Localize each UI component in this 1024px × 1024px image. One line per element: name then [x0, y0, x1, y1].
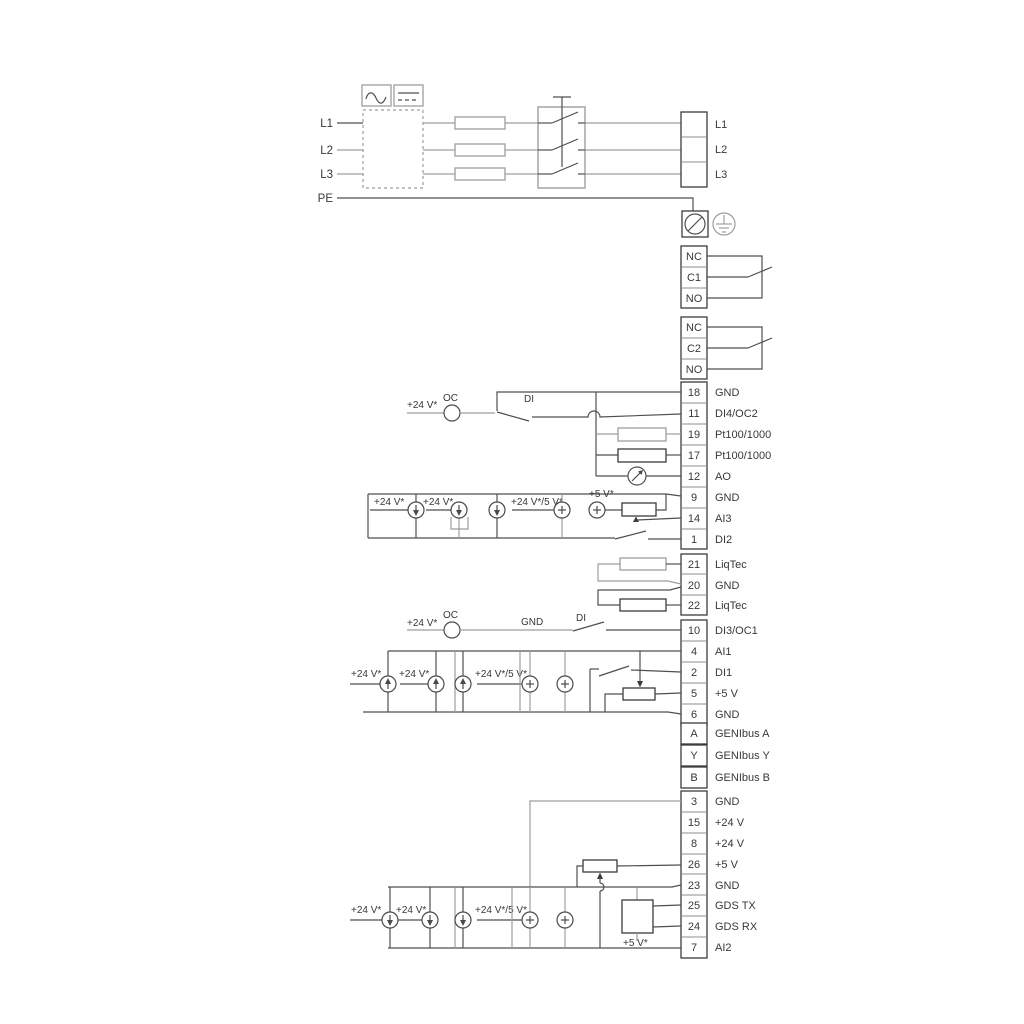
terminal-number: NC — [686, 322, 702, 334]
terminal-number: 17 — [688, 450, 700, 462]
potentiometer-symbol — [622, 503, 656, 516]
terminal-label: GND — [715, 709, 740, 721]
terminal-label: +5 V — [715, 859, 739, 871]
earth-icon — [713, 213, 735, 235]
voltage-annotation: +24 V* — [374, 497, 404, 508]
pe-label: PE — [318, 193, 334, 205]
terminal-label: L3 — [715, 169, 727, 181]
switch-symbol — [599, 666, 629, 676]
current-source-icon — [455, 912, 471, 928]
current-source-icon — [380, 676, 396, 692]
terminal-label: +24 V — [715, 817, 745, 829]
di-annotation: DI — [524, 394, 534, 405]
terminal-label: Pt100/1000 — [715, 429, 771, 441]
terminal-number: 8 — [691, 838, 697, 850]
voltage-source-icon — [554, 502, 570, 518]
resistor-symbol — [618, 428, 666, 441]
wire — [577, 866, 583, 887]
wire — [653, 905, 681, 906]
wire — [617, 865, 681, 866]
phase-label: L2 — [320, 145, 333, 157]
current-source-icon — [382, 912, 398, 928]
voltage-annotation: +24 V* — [351, 669, 381, 680]
terminal-number: A — [690, 728, 698, 740]
terminal-number: 14 — [688, 513, 700, 525]
gds-sensor-box — [622, 900, 653, 933]
voltage-annotation: +24 V* — [423, 497, 453, 508]
wire — [637, 518, 681, 520]
wiper-arrow — [633, 517, 639, 523]
wire — [655, 693, 681, 694]
relay-contact-symbol — [707, 327, 772, 369]
terminal-number: NC — [686, 251, 702, 263]
phase-label: L3 — [320, 169, 333, 181]
voltage-source-icon — [522, 912, 538, 928]
di-annotation: DI — [576, 613, 586, 624]
terminal-number: 21 — [688, 559, 700, 571]
wire — [666, 494, 681, 496]
current-source-icon — [451, 502, 467, 518]
ao-meter-icon — [628, 467, 646, 485]
terminal-label: DI2 — [715, 534, 732, 546]
gnd-annotation: GND — [521, 617, 543, 628]
terminal-number: 5 — [691, 688, 697, 700]
terminal-number: 1 — [691, 534, 697, 546]
wiring-diagram: L1 L2 L3 PE — [0, 0, 1024, 1024]
terminal-number: 11 — [688, 408, 699, 420]
relay-contact-symbol — [707, 256, 772, 298]
terminal-number: C2 — [687, 343, 701, 355]
potentiometer-symbol — [623, 688, 655, 700]
switch-symbol — [497, 412, 529, 421]
wire — [605, 694, 623, 712]
voltage-annotation: +24 V* — [351, 905, 381, 916]
wire — [656, 494, 666, 510]
wire — [653, 926, 681, 927]
terminal-label: GND — [715, 387, 740, 399]
wiper-arrow — [637, 681, 643, 688]
terminal-label: GDS TX — [715, 900, 756, 912]
power-input-section: L1 L2 L3 PE — [318, 85, 735, 237]
switch-symbol — [615, 531, 646, 539]
voltage-annotation: +24 V* — [407, 400, 437, 411]
voltage-annotation: +5 V* — [623, 938, 648, 949]
terminal-number: 23 — [688, 880, 700, 892]
terminal-number: 19 — [688, 429, 700, 441]
terminal-number: 9 — [691, 492, 697, 504]
voltage-annotation: +24 V* — [399, 669, 429, 680]
current-source-icon — [408, 502, 424, 518]
wire — [668, 712, 681, 714]
terminal-number: 10 — [688, 625, 700, 637]
terminal-label: AI3 — [715, 513, 732, 525]
terminal-number: NO — [686, 293, 703, 305]
di3-row: +24 V* OC GND DI — [407, 610, 681, 638]
terminal-strip-io1: 18 11 19 17 12 9 14 1 GND DI4/OC2 Pt100/… — [681, 382, 771, 549]
terminal-label: AI1 — [715, 646, 732, 658]
oc-annotation: OC — [443, 393, 458, 404]
wire-rail — [388, 885, 681, 887]
dc-symbol-icon — [394, 85, 423, 106]
terminal-label: GDS RX — [715, 921, 758, 933]
terminal-label: LiqTec — [715, 559, 747, 571]
terminal-label: GND — [715, 796, 740, 808]
terminal-label: AI2 — [715, 942, 732, 954]
terminal-label: GENIbus Y — [715, 750, 770, 762]
voltage-annotation: +5 V* — [589, 489, 614, 500]
potentiometer-symbol — [583, 860, 617, 872]
terminal-label: GND — [715, 580, 740, 592]
terminal-label: LiqTec — [715, 600, 747, 612]
voltage-annotation: +24 V*/5 V* — [475, 669, 527, 680]
terminal-strip-io3: 3 15 8 26 23 25 24 7 GND +24 V +24 V +5 … — [681, 791, 758, 958]
terminal-label: GND — [715, 880, 740, 892]
terminal-number: 2 — [691, 667, 697, 679]
terminal-number: 25 — [688, 900, 700, 912]
wiring-diagram-page: L1 L2 L3 PE — [0, 0, 1024, 1024]
resistor-symbol — [618, 449, 666, 462]
terminal-number: 3 — [691, 796, 697, 808]
current-source-icon — [422, 912, 438, 928]
current-source-icon — [428, 676, 444, 692]
terminal-label: GENIbus B — [715, 772, 770, 784]
terminal-number: Y — [690, 750, 698, 762]
terminal-strip-power: L1 L2 L3 — [681, 112, 727, 187]
terminal-number: 4 — [691, 646, 697, 658]
terminal-label: +24 V — [715, 838, 745, 850]
relay-2-section: NC C2 NO — [681, 317, 772, 379]
ai2-option-group: +24 V* +24 V* +24 V*/5 V* +5 V* — [350, 801, 681, 949]
current-source-icon — [455, 676, 471, 692]
pe-wire — [337, 198, 693, 211]
terminal-number: 24 — [688, 921, 700, 933]
voltage-annotation: +24 V*/5 V* — [475, 905, 527, 916]
terminal-label: DI3/OC1 — [715, 625, 758, 637]
terminal-block — [681, 112, 707, 187]
wire-di4 — [532, 411, 681, 417]
ac-symbol-icon — [362, 85, 391, 106]
terminal-label: DI4/OC2 — [715, 408, 758, 420]
terminal-strip-io2: 10 4 2 5 6 DI3/OC1 AI1 DI1 +5 V GND — [681, 620, 758, 725]
terminal-label: L2 — [715, 144, 727, 156]
resistor-symbol — [620, 599, 666, 611]
wire — [631, 670, 681, 672]
fuse-symbol — [455, 117, 505, 129]
oc-annotation: OC — [443, 610, 458, 621]
di4-row: +24 V* OC DI — [407, 392, 681, 485]
voltage-source-icon — [557, 676, 573, 692]
wire — [530, 801, 681, 887]
terminal-strip-liqtec: 21 20 22 LiqTec GND LiqTec — [598, 554, 747, 615]
fuse-symbol — [455, 168, 505, 180]
terminal-label: +5 V — [715, 688, 739, 700]
voltage-source-icon — [557, 912, 573, 928]
relay-1-section: NC C1 NO — [681, 246, 772, 308]
terminal-label: Pt100/1000 — [715, 450, 771, 462]
terminal-strip-genibus: A Y B GENIbus A GENIbus Y GENIbus B — [681, 723, 770, 788]
voltage-annotation: +24 V* — [407, 618, 437, 629]
voltage-source-icon — [522, 676, 538, 692]
terminal-number: 15 — [688, 817, 700, 829]
current-source-icon — [489, 502, 505, 518]
drive-input-box — [363, 110, 423, 188]
terminal-number: 6 — [691, 709, 697, 721]
resistor-symbol — [620, 558, 666, 570]
terminal-number: 22 — [688, 600, 700, 612]
open-collector-icon — [444, 622, 460, 638]
terminal-number: 26 — [688, 859, 700, 871]
voltage-source-icon — [589, 502, 605, 518]
terminal-number: 18 — [688, 387, 700, 399]
terminal-number: B — [690, 772, 697, 784]
terminal-number: C1 — [687, 272, 701, 284]
phase-label: L1 — [320, 118, 333, 130]
terminal-number: NO — [686, 364, 703, 376]
ai1-option-group: +24 V* +24 V* +24 V*/5 V* — [350, 651, 681, 714]
terminal-number: 20 — [688, 580, 700, 592]
terminal-label: DI1 — [715, 667, 732, 679]
terminal-number: 12 — [688, 471, 700, 483]
terminal-number: 7 — [691, 942, 697, 954]
terminal-label: GND — [715, 492, 740, 504]
fuse-symbol — [455, 144, 505, 156]
voltage-annotation: +24 V* — [396, 905, 426, 916]
terminal-label: L1 — [715, 119, 727, 131]
ai3-option-group: +24 V* +24 V* +24 V*/5 V* +5 V* — [368, 489, 681, 539]
terminal-label: GENIbus A — [715, 728, 770, 740]
terminal-label: AO — [715, 471, 731, 483]
open-collector-icon — [444, 405, 460, 421]
